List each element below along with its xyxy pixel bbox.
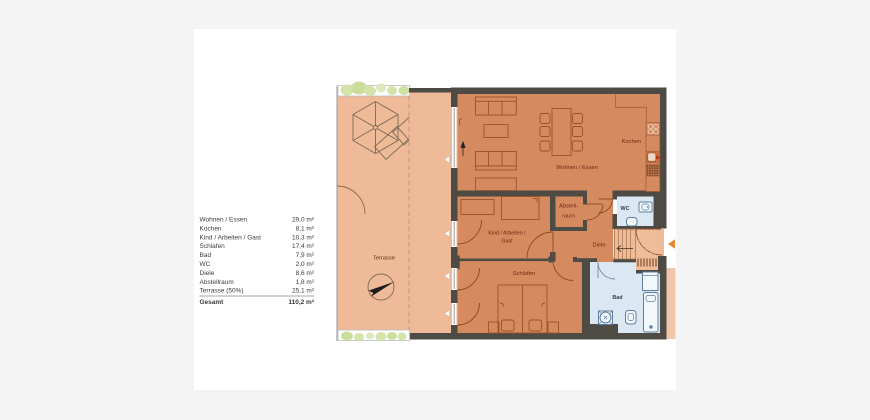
svg-text:17,4 m²: 17,4 m² (292, 243, 315, 250)
svg-text:7,9 m²: 7,9 m² (296, 252, 315, 259)
svg-text:29,0 m²: 29,0 m² (292, 217, 315, 224)
svg-text:Wohnen / Essen: Wohnen / Essen (200, 217, 248, 224)
svg-text:raum: raum (562, 214, 575, 220)
svg-text:Schlafen: Schlafen (200, 243, 226, 250)
svg-text:Kochen: Kochen (622, 139, 641, 145)
svg-text:Kochen: Kochen (200, 225, 222, 232)
svg-text:Terrasse (50%): Terrasse (50%) (200, 288, 244, 295)
svg-text:10,3 m²: 10,3 m² (292, 234, 315, 241)
svg-text:25,1 m²: 25,1 m² (292, 288, 315, 295)
svg-text:110,2 m²: 110,2 m² (288, 299, 314, 306)
svg-text:Kind / Arbeiten / Gast: Kind / Arbeiten / Gast (200, 234, 262, 241)
svg-text:WC: WC (621, 206, 630, 212)
svg-text:Wohnen / Essen: Wohnen / Essen (556, 165, 598, 171)
svg-text:Abstell-: Abstell- (559, 204, 578, 210)
svg-text:Bad: Bad (612, 295, 622, 301)
svg-text:Gesamt: Gesamt (200, 299, 225, 306)
svg-text:8,6 m²: 8,6 m² (296, 270, 315, 277)
svg-text:Gast: Gast (501, 239, 513, 245)
svg-text:Diele: Diele (593, 243, 606, 249)
svg-text:WC: WC (200, 261, 211, 268)
svg-text:1,8 m²: 1,8 m² (296, 279, 315, 286)
svg-text:Schlafen: Schlafen (513, 271, 535, 277)
svg-text:Terrasse: Terrasse (373, 256, 395, 262)
svg-text:Abstellraum: Abstellraum (200, 279, 234, 286)
svg-text:Kind / Arbeiten /: Kind / Arbeiten / (488, 231, 526, 237)
svg-text:8,1 m²: 8,1 m² (296, 225, 315, 232)
svg-text:Bad: Bad (200, 252, 212, 259)
svg-text:Diele: Diele (200, 270, 215, 277)
svg-text:2,0 m²: 2,0 m² (296, 261, 315, 268)
